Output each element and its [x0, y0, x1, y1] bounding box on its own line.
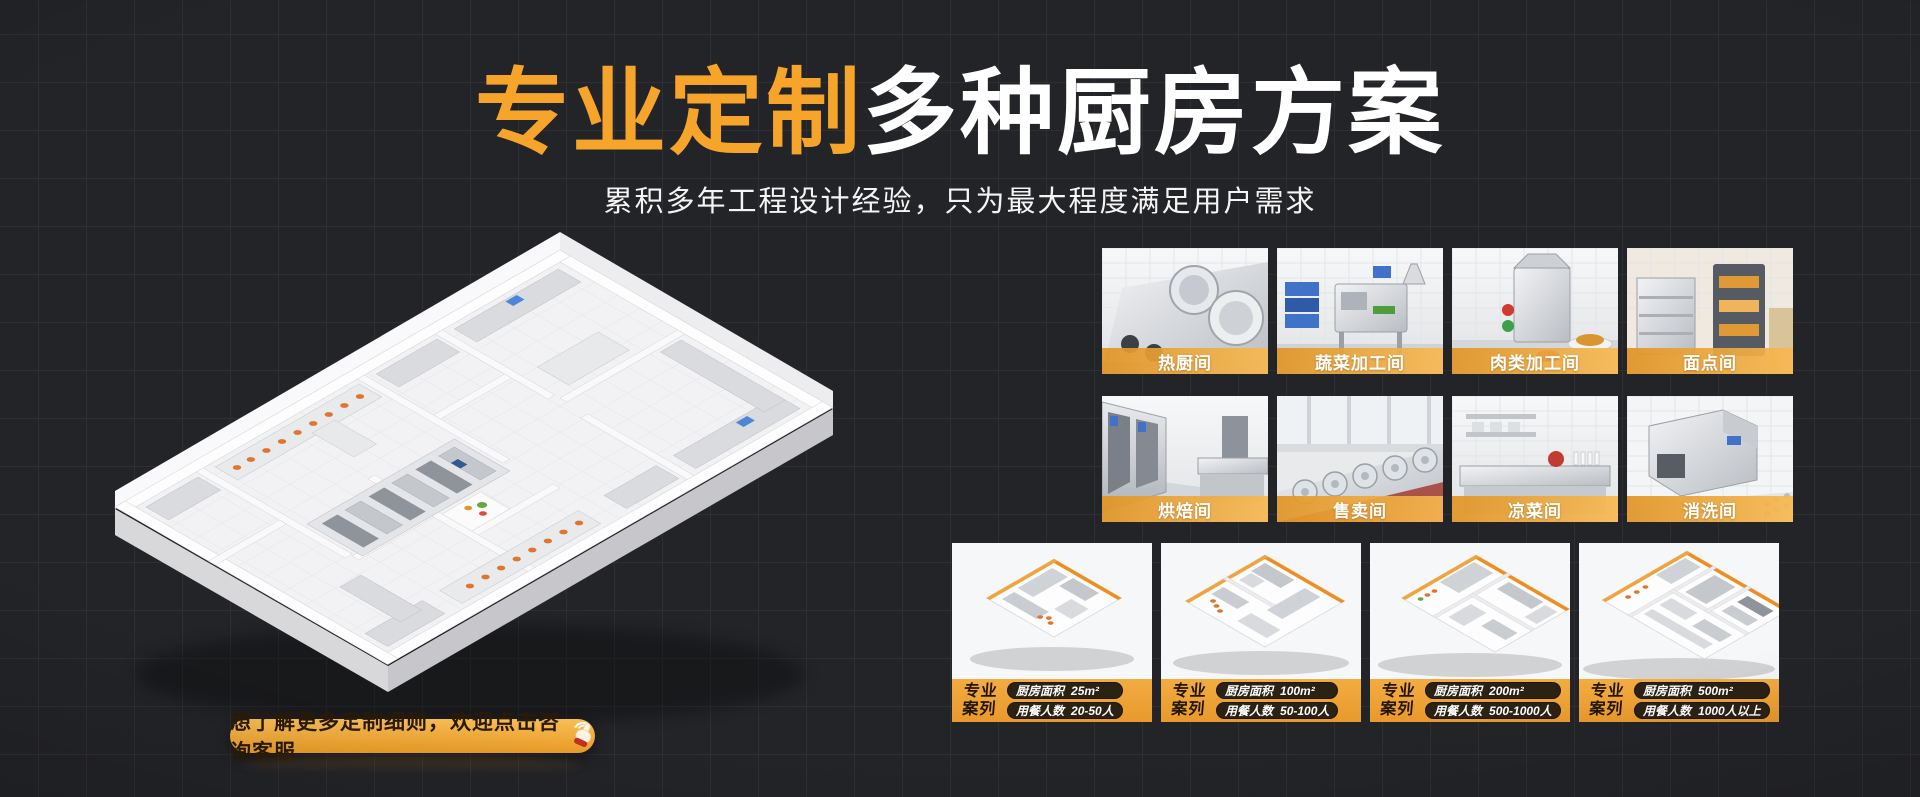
case-floorplan-100 [1161, 543, 1361, 679]
case-diners-pill: 用餐人数20-50人 [1007, 702, 1123, 719]
case-area-pill: 厨房面积100m² [1216, 682, 1338, 699]
kitchen-floorplan-3d-illustration [90, 222, 850, 742]
page-title: 专业定制多种厨房方案 [0, 64, 1920, 162]
case-badge: 专业 案列 [1584, 683, 1629, 719]
case-diners-pill: 用餐人数500-1000人 [1425, 702, 1561, 719]
case-diners-pill: 用餐人数50-100人 [1216, 702, 1338, 719]
case-floorplan-200 [1370, 543, 1570, 679]
case-card-25[interactable]: 专业 案列 厨房面积25m² 用餐人数20-50人 [952, 543, 1152, 722]
case-area-pill: 厨房面积200m² [1425, 682, 1561, 699]
room-label: 肉类加工间 [1452, 348, 1618, 374]
room-tile-hot-kitchen[interactable]: 热厨间 [1102, 248, 1268, 374]
page-subtitle: 累积多年工程设计经验，只为最大程度满足用户需求 [0, 178, 1920, 220]
case-photo [952, 543, 1152, 679]
case-badge: 专业 案列 [957, 683, 1002, 719]
room-tile-meat-processing[interactable]: 肉类加工间 [1452, 248, 1618, 374]
case-card-500[interactable]: 专业 案列 厨房面积500m² 用餐人数1000人以上 [1579, 543, 1779, 722]
case-floorplan-500 [1579, 543, 1779, 679]
room-label: 烘焙间 [1102, 496, 1268, 522]
case-badge: 专业 案列 [1166, 683, 1211, 719]
contact-cta-button[interactable]: 想了解更多定制细则，欢迎点击咨询客服 [230, 719, 595, 753]
case-area-pill: 厨房面积500m² [1634, 682, 1770, 699]
room-label: 热厨间 [1102, 348, 1268, 374]
case-info-bar: 专业 案列 厨房面积500m² 用餐人数1000人以上 [1579, 679, 1779, 722]
kitchen-solutions-banner: 专业定制多种厨房方案 累积多年工程设计经验，只为最大程度满足用户需求 [0, 0, 1920, 797]
case-diners-pill: 用餐人数1000人以上 [1634, 702, 1770, 719]
room-tile-cold-dishes[interactable]: 凉菜间 [1452, 396, 1618, 522]
room-tile-vegetable-processing[interactable]: 蔬菜加工间 [1277, 248, 1443, 374]
case-card-200[interactable]: 专业 案列 厨房面积200m² 用餐人数500-1000人 [1370, 543, 1570, 722]
case-info-bar: 专业 案列 厨房面积200m² 用餐人数500-1000人 [1370, 679, 1570, 722]
tap-hand-icon [567, 715, 601, 749]
case-photo [1579, 543, 1779, 679]
case-card-100[interactable]: 专业 案列 厨房面积100m² 用餐人数50-100人 [1161, 543, 1361, 722]
case-area-pill: 厨房面积25m² [1007, 682, 1123, 699]
case-gallery: 专业 案列 厨房面积25m² 用餐人数20-50人 [952, 543, 1779, 722]
case-info-bar: 专业 案列 厨房面积25m² 用餐人数20-50人 [952, 679, 1152, 722]
room-label: 售卖间 [1277, 496, 1443, 522]
case-photo [1161, 543, 1361, 679]
page-title-rest: 多种厨房方案 [863, 60, 1445, 165]
case-badge: 专业 案列 [1375, 683, 1420, 719]
room-tile-baking[interactable]: 烘焙间 [1102, 396, 1268, 522]
room-label: 消洗间 [1627, 496, 1793, 522]
room-tile-dishwashing[interactable]: 消洗间 [1627, 396, 1793, 522]
room-tile-pastry[interactable]: 面点间 [1627, 248, 1793, 374]
case-info-bar: 专业 案列 厨房面积100m² 用餐人数50-100人 [1161, 679, 1361, 722]
room-label: 蔬菜加工间 [1277, 348, 1443, 374]
case-photo [1370, 543, 1570, 679]
case-floorplan-25 [952, 543, 1152, 679]
page-title-highlight: 专业定制 [475, 60, 863, 165]
room-tile-serving[interactable]: 售卖间 [1277, 396, 1443, 522]
room-label: 面点间 [1627, 348, 1793, 374]
room-gallery: 热厨间 蔬菜加工间 [1102, 248, 1793, 522]
cta-label: 想了解更多定制细则，欢迎点击咨询客服 [230, 706, 561, 766]
room-label: 凉菜间 [1452, 496, 1618, 522]
